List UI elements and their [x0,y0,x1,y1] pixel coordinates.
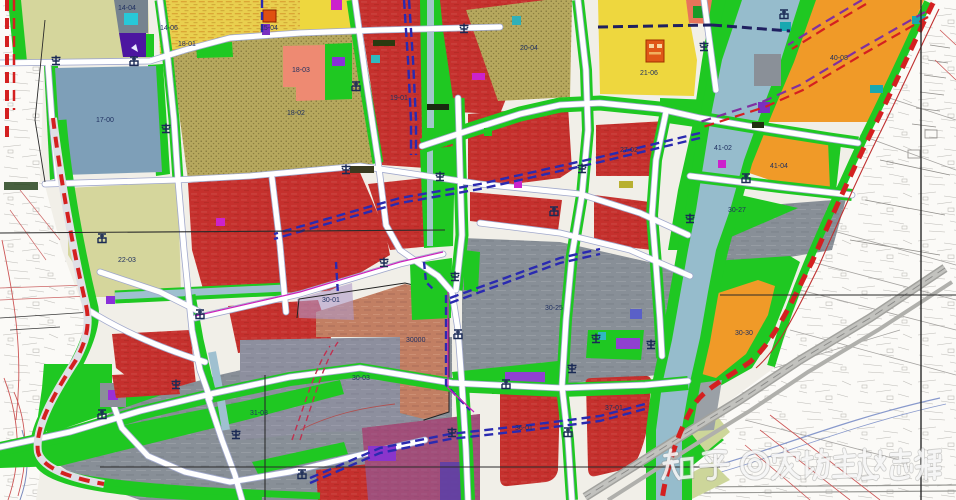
svg-text:30-01: 30-01 [322,297,340,304]
svg-text:36-01: 36-01 [515,425,533,432]
svg-text:41-04: 41-04 [770,163,788,170]
svg-text:30-30: 30-30 [735,330,753,337]
svg-text:19-01: 19-01 [390,95,408,102]
svg-text:27-02: 27-02 [620,147,638,154]
svg-text:30-25: 30-25 [545,305,563,312]
svg-text:37-01: 37-01 [605,405,623,412]
svg-text:22-03: 22-03 [118,257,136,264]
svg-text:41-02: 41-02 [714,145,732,152]
svg-text:40-08: 40-08 [830,55,848,62]
svg-text:30-03: 30-03 [352,375,370,382]
svg-text:14-04: 14-04 [118,5,136,12]
svg-text:31-08: 31-08 [250,410,268,417]
svg-text:18-02: 18-02 [287,110,305,117]
svg-text:18-03: 18-03 [292,67,310,74]
svg-text:20-04: 20-04 [520,45,538,52]
svg-text:17-00: 17-00 [96,117,114,124]
svg-text:21-06: 21-06 [640,70,658,77]
svg-text:14-06: 14-06 [160,25,178,32]
svg-text:15-04: 15-04 [260,25,278,32]
svg-text:18-01: 18-01 [178,41,196,48]
svg-text:30000: 30000 [406,337,426,344]
svg-text:30-27: 30-27 [728,207,746,214]
